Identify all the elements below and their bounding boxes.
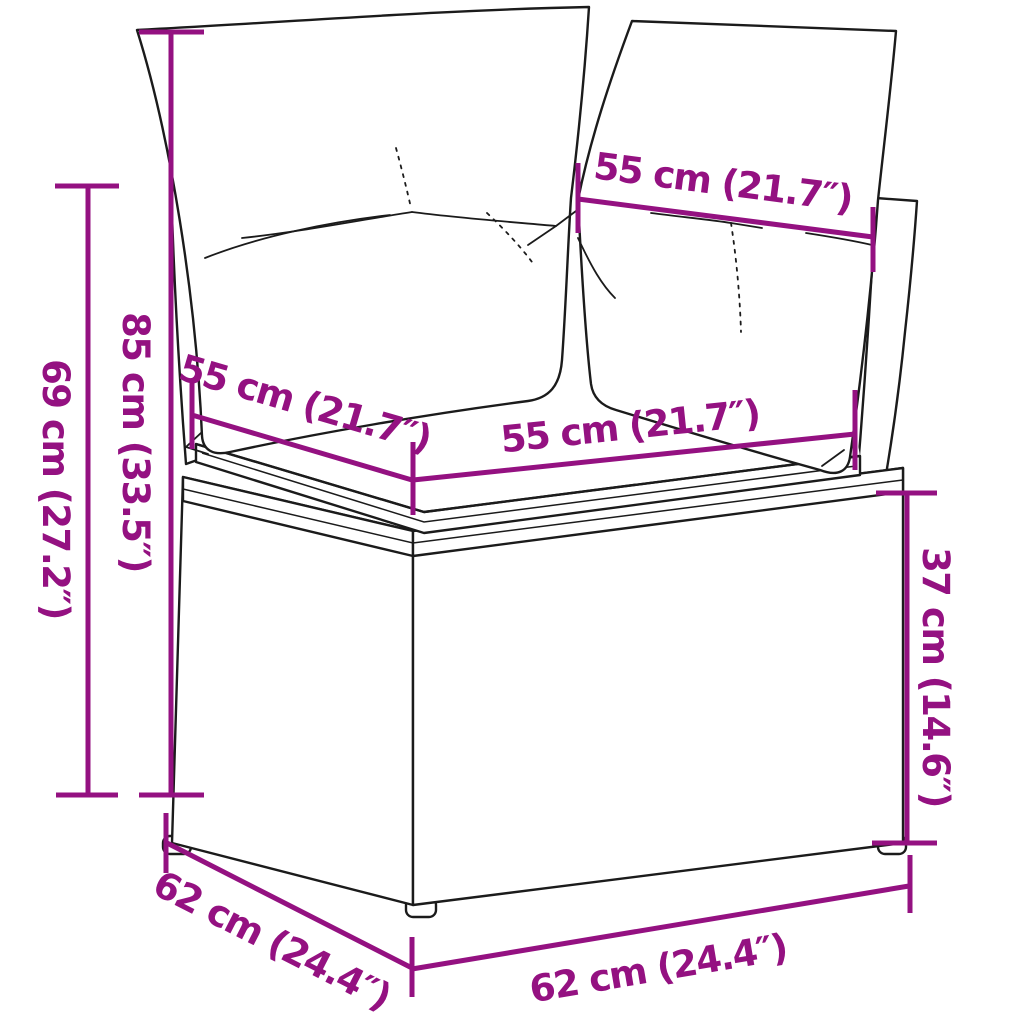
total-height-label: 85 cm (33.5″) bbox=[114, 312, 157, 572]
sofa-drawing bbox=[137, 7, 917, 917]
dimension-backrest-height: 69 cm (27.2″) bbox=[34, 186, 119, 795]
backrest-height-label: 69 cm (27.2″) bbox=[34, 359, 77, 619]
base-width-label: 62 cm (24.4″) bbox=[526, 926, 789, 1012]
seat-height-label: 37 cm (14.6″) bbox=[914, 547, 957, 807]
wicker-base bbox=[172, 468, 903, 905]
sofa-dimension-drawing: 85 cm (33.5″) 69 cm (27.2″) 55 cm (21.7″… bbox=[0, 0, 1024, 1024]
dimension-diagram: 85 cm (33.5″) 69 cm (27.2″) 55 cm (21.7″… bbox=[0, 0, 1024, 1024]
